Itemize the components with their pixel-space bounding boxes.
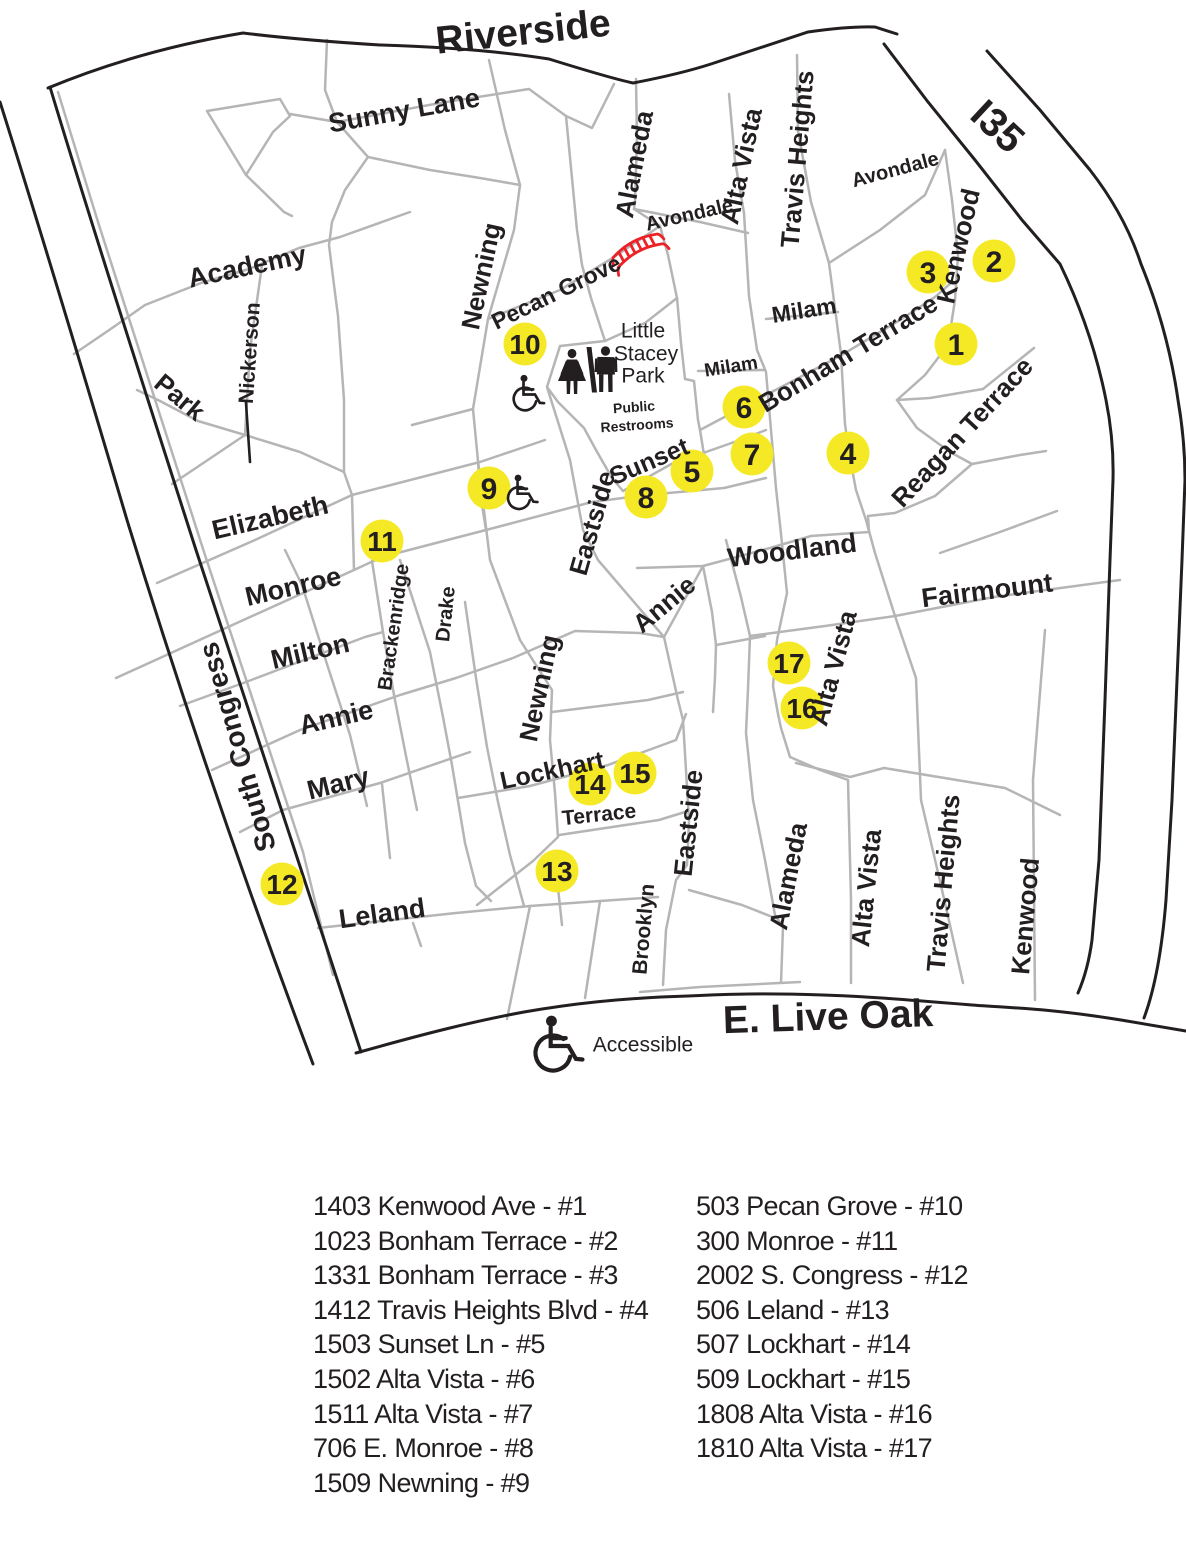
svg-text:11: 11	[367, 526, 397, 557]
svg-text:509 Lockhart - #15: 509 Lockhart - #15	[696, 1364, 910, 1394]
svg-text:1509 Newning - #9: 1509 Newning - #9	[313, 1468, 529, 1498]
svg-text:Public: Public	[612, 397, 655, 416]
svg-text:2: 2	[986, 246, 1003, 279]
svg-text:507 Lockhart - #14: 507 Lockhart - #14	[696, 1329, 911, 1359]
svg-text:1808 Alta Vista - #16: 1808 Alta Vista - #16	[696, 1399, 932, 1429]
svg-text:Little: Little	[621, 319, 665, 342]
svg-text:13: 13	[541, 856, 572, 887]
svg-text:2002 S. Congress - #12: 2002 S. Congress - #12	[696, 1260, 968, 1290]
svg-text:E. Live Oak: E. Live Oak	[722, 992, 934, 1042]
svg-text:15: 15	[619, 758, 650, 789]
svg-text:300 Monroe - #11: 300 Monroe - #11	[696, 1226, 898, 1256]
svg-text:Stacey: Stacey	[614, 342, 679, 365]
svg-text:1403 Kenwood Ave - #1: 1403 Kenwood Ave - #1	[313, 1191, 587, 1221]
svg-text:17: 17	[773, 648, 804, 679]
svg-text:9: 9	[481, 473, 498, 506]
svg-text:10: 10	[509, 329, 540, 360]
svg-text:7: 7	[744, 439, 761, 472]
svg-text:12: 12	[266, 869, 297, 900]
svg-text:Park: Park	[621, 364, 665, 387]
svg-text:503 Pecan Grove - #10: 503 Pecan Grove - #10	[696, 1191, 963, 1221]
svg-text:1331 Bonham Terrace - #3: 1331 Bonham Terrace - #3	[313, 1260, 618, 1290]
svg-text:8: 8	[638, 482, 655, 515]
svg-text:1: 1	[948, 329, 965, 362]
svg-text:1511 Alta Vista - #7: 1511 Alta Vista - #7	[313, 1399, 533, 1429]
svg-text:1503 Sunset Ln - #5: 1503 Sunset Ln - #5	[313, 1329, 545, 1359]
svg-text:1502 Alta Vista - #6: 1502 Alta Vista - #6	[313, 1364, 535, 1394]
svg-text:706 E. Monroe - #8: 706 E. Monroe - #8	[313, 1433, 533, 1463]
svg-text:1023 Bonham Terrace - #2: 1023 Bonham Terrace - #2	[313, 1226, 618, 1256]
svg-text:Accessible: Accessible	[593, 1033, 693, 1056]
svg-text:1412 Travis Heights Blvd - #4: 1412 Travis Heights Blvd - #4	[313, 1295, 649, 1325]
svg-text:4: 4	[840, 438, 857, 471]
svg-text:1810 Alta Vista - #17: 1810 Alta Vista - #17	[696, 1433, 932, 1463]
svg-text:6: 6	[736, 392, 753, 425]
svg-text:506 Leland - #13: 506 Leland - #13	[696, 1295, 889, 1325]
